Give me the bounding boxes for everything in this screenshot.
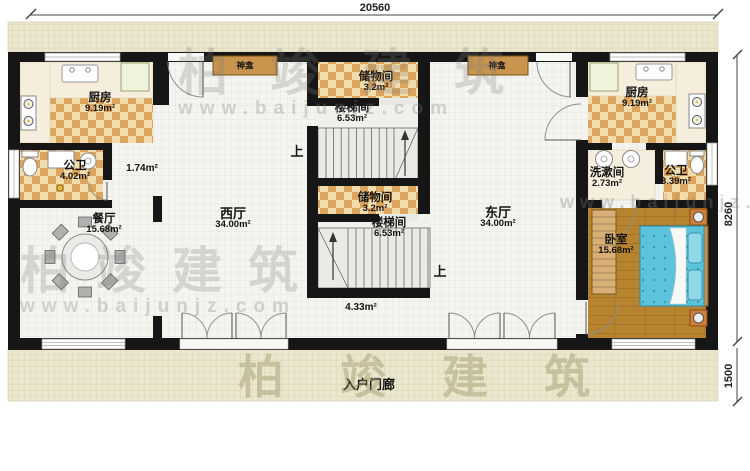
- window: [612, 339, 695, 349]
- threshold: [536, 53, 572, 61]
- room-label-toilet-left: 公卫 4.02m²: [60, 160, 90, 182]
- window: [610, 53, 685, 61]
- threshold: [447, 339, 557, 349]
- label-stairs-up-south: 上: [433, 266, 446, 278]
- dimension-right-porch: 1500: [723, 364, 735, 388]
- window: [707, 143, 717, 185]
- fridge: [121, 63, 149, 91]
- window: [42, 339, 125, 349]
- area-label-passage: 4.33m²: [345, 302, 377, 314]
- label-shrine-west: 神龛: [236, 62, 253, 71]
- room-label-bedroom: 卧室 15.68m²: [598, 234, 633, 256]
- room-label-dining: 餐厅 15.68m²: [86, 213, 121, 235]
- threshold: [379, 99, 418, 105]
- label-shrine-east: 神龛: [488, 62, 505, 71]
- dimension-top: 20560: [360, 2, 391, 14]
- room-label-storage-top: 储物间 3.2m²: [359, 71, 394, 93]
- room-label-storage-mid: 储物间 3.2m²: [358, 192, 393, 214]
- room-label-kitchen-right: 厨房 9.19m²: [622, 87, 652, 109]
- room-label-porch: 入户门廊: [343, 379, 395, 391]
- stairs-north: [318, 128, 418, 182]
- room-label-stair-bottom: 楼梯间 6.53m²: [372, 217, 407, 239]
- toilet: [22, 151, 38, 157]
- room-label-toilet-right: 公卫 3.39m²: [661, 165, 691, 187]
- sink: [636, 64, 672, 80]
- vanity: [665, 151, 687, 166]
- threshold: [180, 339, 288, 349]
- basin: [596, 151, 613, 168]
- pillow: [688, 270, 702, 300]
- room-label-west-hall: 西厅 34.00m²: [215, 208, 250, 230]
- room-label-kitchen-left: 厨房 9.19m²: [85, 92, 115, 114]
- floorplan-page: 20560 8260 1500 厨房 9.19m² 公卫 4.02m² 1.74…: [0, 0, 750, 471]
- label-stairs-up-north: 上: [290, 146, 303, 158]
- title-block: 一层平面图 1:100 本层建筑面积：176.80m² 占地面积：176.80m…: [0, 410, 750, 471]
- fridge: [590, 63, 618, 91]
- room-label-stair-top: 楼梯间 6.53m²: [335, 102, 370, 124]
- room-label-east-hall: 东厅 34.00m²: [480, 207, 515, 229]
- toilet: [690, 151, 704, 156]
- room-label-wash-room: 洗漱间 2.73m²: [590, 167, 625, 189]
- drain: [57, 185, 63, 191]
- window: [9, 150, 19, 198]
- threshold: [168, 53, 204, 61]
- dimension-right-main: 8260: [723, 202, 735, 226]
- basin: [623, 151, 640, 168]
- window: [45, 53, 120, 61]
- sink: [62, 65, 98, 82]
- pillow: [688, 233, 702, 263]
- area-label-gap: 1.74m²: [126, 163, 158, 175]
